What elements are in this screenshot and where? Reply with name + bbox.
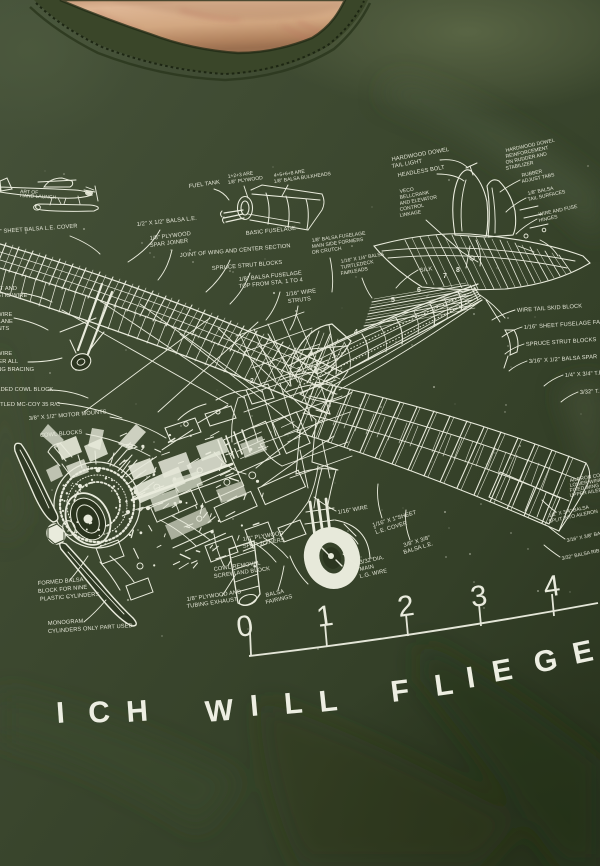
svg-text:MOUNTS: MOUNTS [0, 326, 9, 332]
svg-text:4: 4 [354, 329, 358, 336]
svg-text:2" WIRE: 2" WIRE [0, 351, 12, 357]
svg-text:PIVOT AND: PIVOT AND [0, 286, 17, 292]
svg-text:MOLDED COWL BLOCK: MOLDED COWL BLOCK [0, 387, 53, 393]
svg-text:H: H [125, 695, 149, 729]
svg-text:5: 5 [391, 297, 395, 304]
svg-text:C: C [87, 696, 111, 730]
svg-text:W: W [204, 694, 236, 729]
svg-text:L: L [283, 687, 304, 721]
svg-text:4: 4 [309, 350, 313, 357]
svg-text:7: 7 [443, 273, 447, 280]
svg-text:1/16 WIRE: 1/16 WIRE [0, 312, 13, 318]
svg-text:2: 2 [250, 378, 254, 385]
svg-text:L: L [317, 684, 339, 719]
svg-text:6: 6 [417, 287, 421, 294]
svg-text:WING BRACING: WING BRACING [0, 367, 34, 373]
svg-text:AIRPLANE: AIRPLANE [0, 319, 13, 325]
svg-text:8: 8 [456, 267, 460, 274]
svg-text:OVER ALL: OVER ALL [0, 359, 18, 365]
svg-text:ELASTIC WIRE: ELASTIC WIRE [0, 293, 27, 299]
svg-text:3: 3 [297, 367, 301, 374]
svg-text:THROTTLED MC-COY 35 R/C: THROTTLED MC-COY 35 R/C [0, 402, 60, 408]
